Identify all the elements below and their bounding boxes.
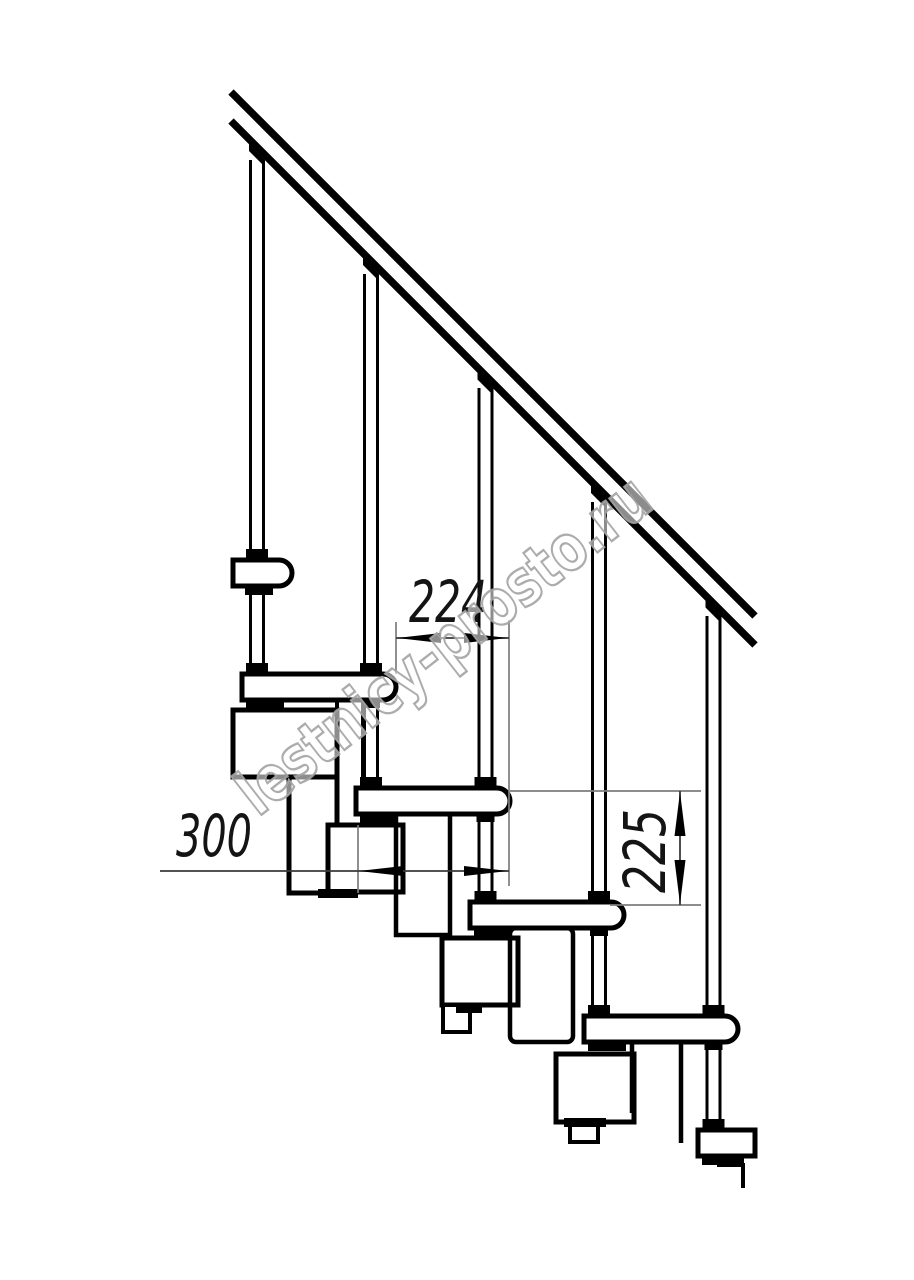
module-box (442, 938, 518, 1005)
baluster-foot (246, 663, 268, 674)
tread-clamp (245, 585, 273, 595)
tread (584, 1016, 738, 1042)
staircase-technical-drawing: 224 300 225 lestnicy-prosto.ru (0, 0, 914, 1280)
tread-clamp (474, 927, 512, 937)
arrowhead (464, 866, 508, 876)
tread (233, 560, 292, 586)
module-box (556, 1054, 634, 1122)
tread-clamp (360, 813, 398, 823)
module-clamp (318, 889, 358, 898)
tread-clamp (477, 813, 495, 822)
tread-clamp (246, 699, 284, 709)
dimension-label-300: 300 (176, 802, 252, 870)
baluster-foot (360, 777, 382, 788)
baluster (249, 144, 265, 676)
baluster-foot (475, 891, 497, 902)
tread-clamp (590, 927, 608, 936)
tread (356, 788, 510, 814)
dimension-label-225: 225 (611, 809, 679, 893)
baluster-collar (475, 777, 497, 788)
baluster (706, 601, 722, 1133)
tread (470, 902, 624, 928)
module-box (328, 825, 403, 892)
module-clamp (456, 1004, 482, 1013)
tread (698, 1130, 755, 1156)
baluster-foot (703, 1119, 725, 1130)
baluster-collar (588, 891, 610, 902)
baluster-collar (246, 549, 268, 560)
tread-clamp (588, 1041, 626, 1051)
tread-clamp (705, 1041, 723, 1050)
baluster-collar (703, 1005, 725, 1016)
watermark: lestnicy-prosto.ru (222, 461, 666, 830)
module-tail (717, 1165, 743, 1188)
drawing-canvas: 224 300 225 lestnicy-prosto.ru (0, 0, 914, 1280)
module-clamp (564, 1118, 606, 1127)
baluster-foot (588, 1005, 610, 1016)
tread-clamp (724, 1157, 744, 1166)
module-tube (632, 1042, 681, 1143)
